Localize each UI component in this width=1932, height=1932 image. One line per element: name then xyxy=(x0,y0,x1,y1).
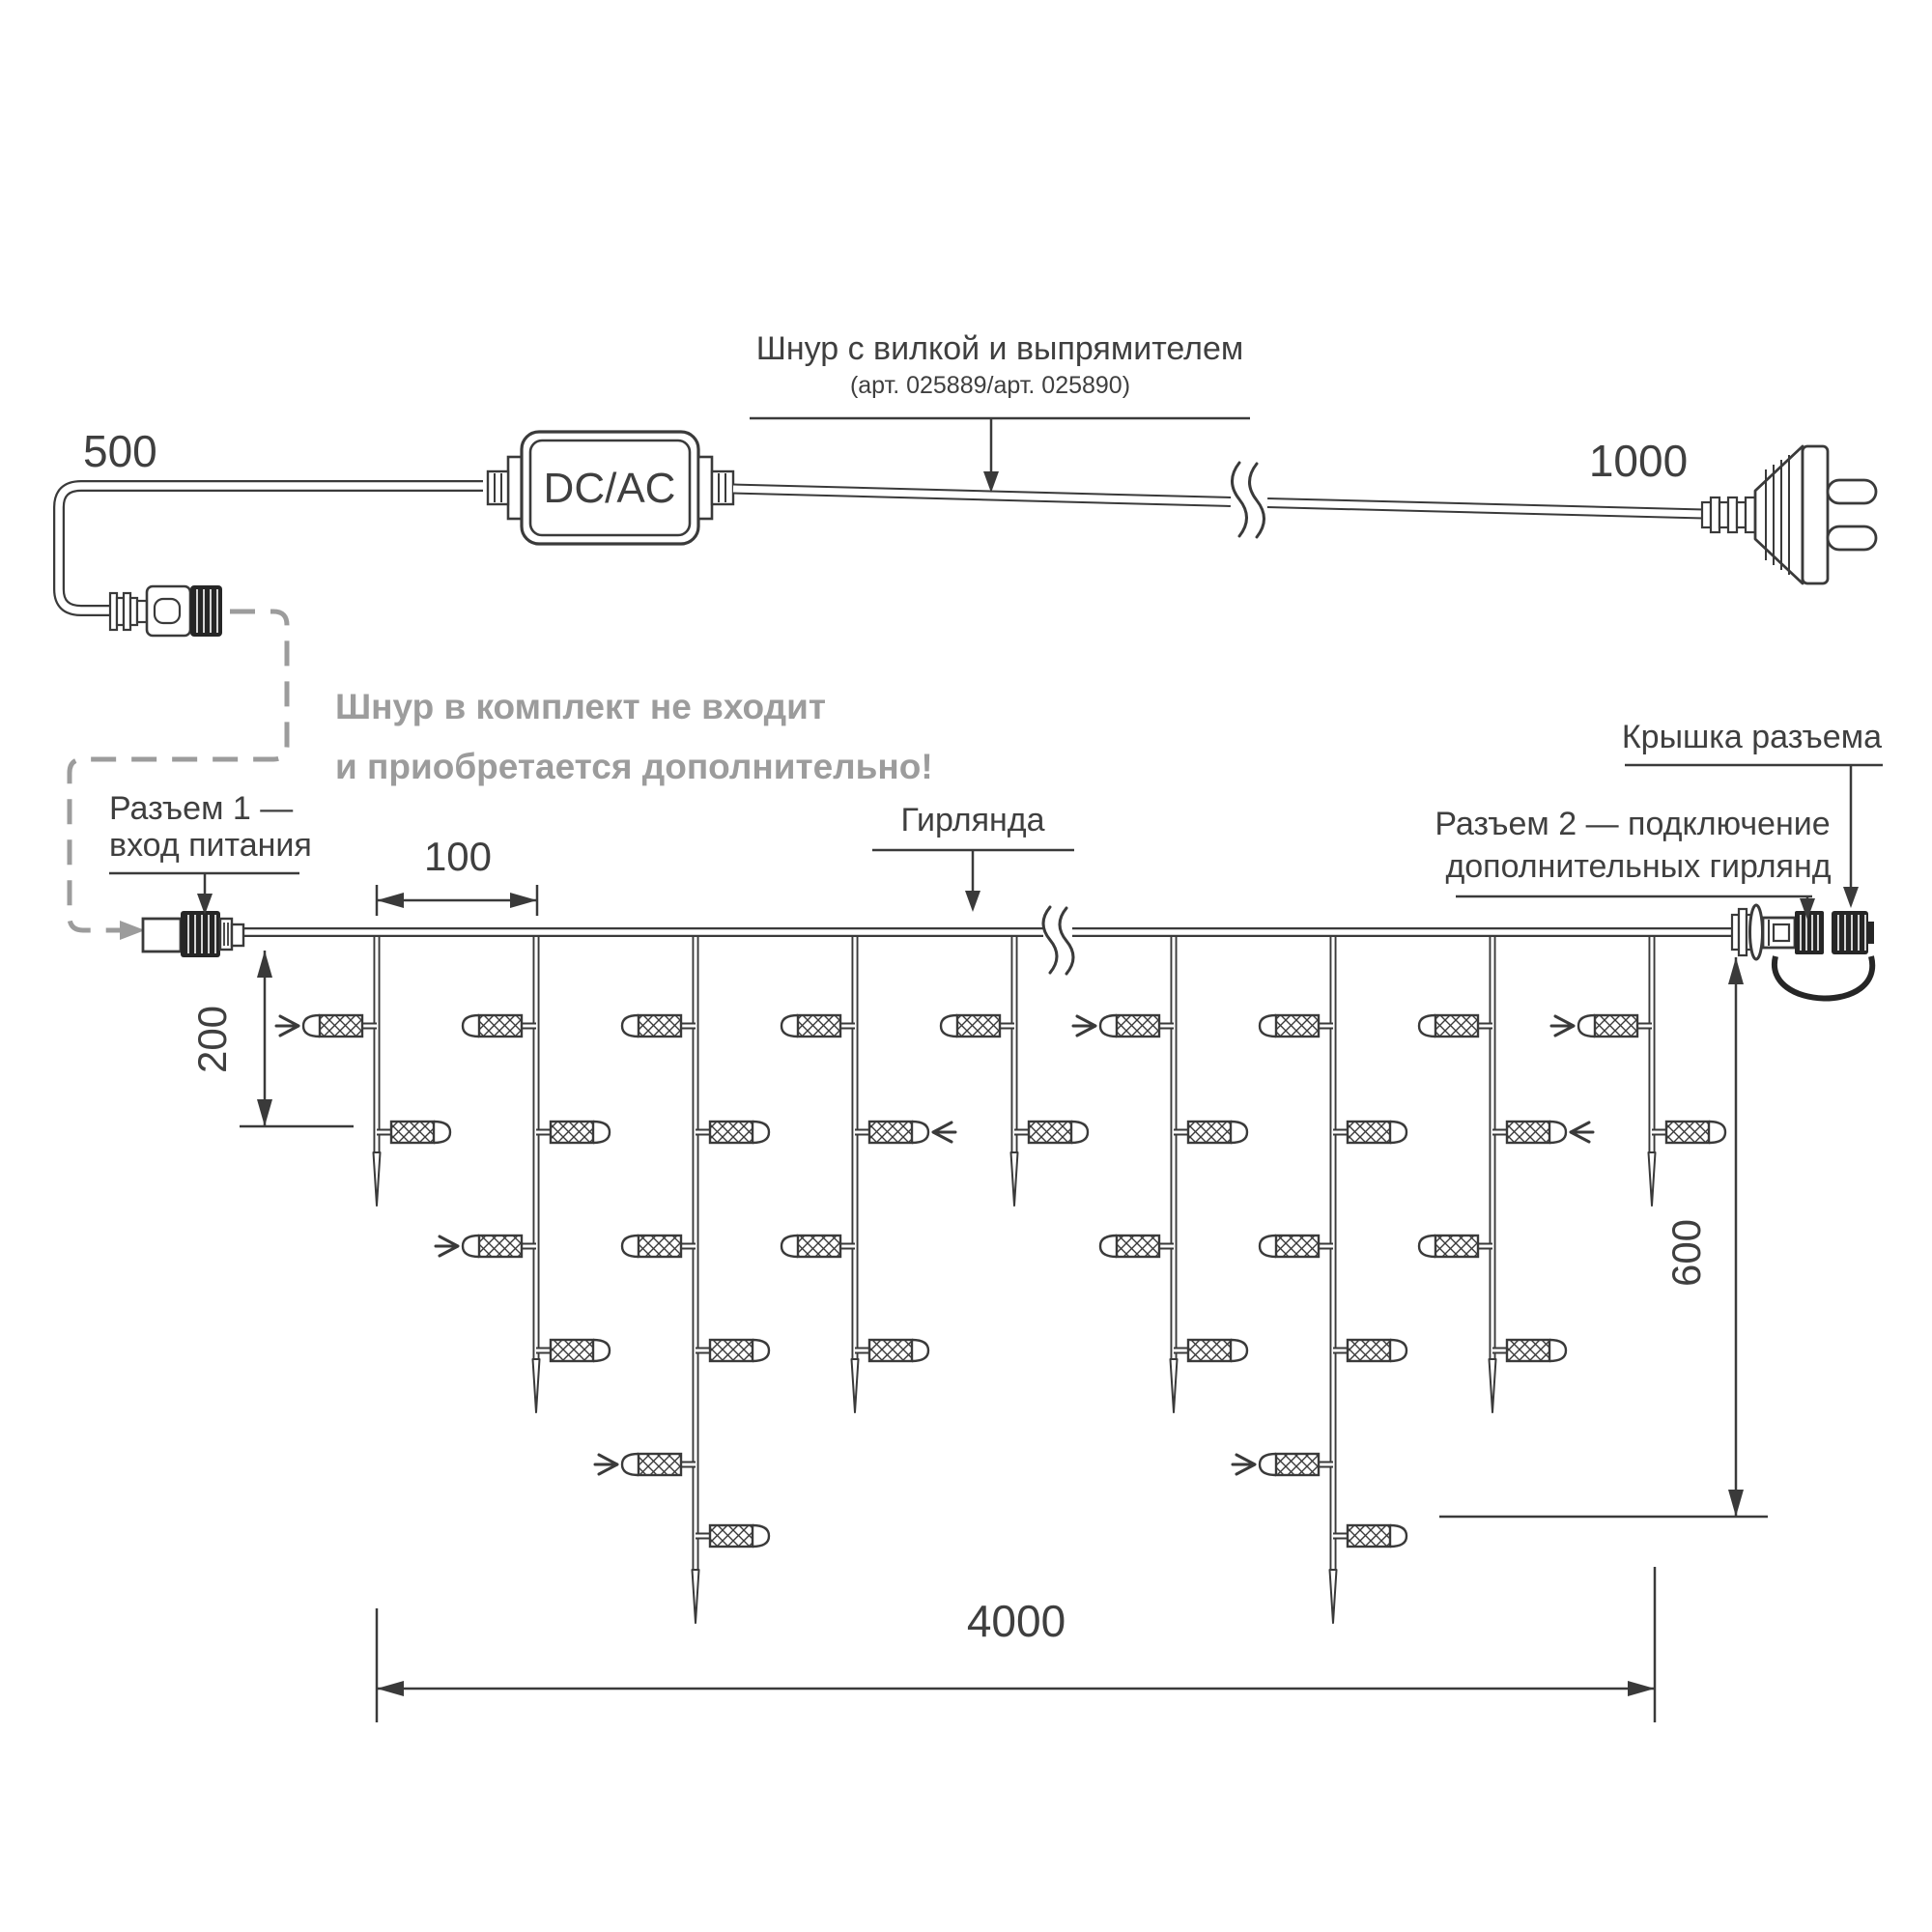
garland-bulbs xyxy=(276,1015,1725,1623)
led-bulb-icon xyxy=(622,1236,696,1257)
bulb-cap xyxy=(1390,1525,1406,1547)
dimension-200-value: 200 xyxy=(189,1006,235,1073)
bulb-cap xyxy=(622,1454,639,1475)
led-bulb-icon xyxy=(1073,1015,1174,1037)
led-bulb-icon xyxy=(622,1015,696,1037)
led-bulb-icon xyxy=(855,1340,928,1361)
dimension-600-value: 600 xyxy=(1663,1219,1709,1287)
led-bulb-icon xyxy=(941,1015,1014,1037)
bulb-cap xyxy=(1260,1454,1276,1475)
bulb-cap xyxy=(753,1340,769,1361)
arrow-down-icon xyxy=(1843,887,1859,908)
power-cord xyxy=(59,486,483,611)
led-bulb-icon xyxy=(1260,1236,1333,1257)
dimension-100-value: 100 xyxy=(424,834,492,879)
cord-break-icon xyxy=(1233,463,1264,537)
led-bulb-icon xyxy=(696,1122,769,1143)
dimension-100: 100 xyxy=(377,834,537,916)
light-rays-icon xyxy=(1233,1455,1255,1474)
bulb-cap xyxy=(1419,1015,1435,1037)
bulb-cap xyxy=(1231,1122,1247,1143)
drop-tip xyxy=(1330,1570,1337,1623)
bulb-cap xyxy=(1260,1236,1276,1257)
light-rays-icon xyxy=(436,1236,458,1256)
bulb-cap xyxy=(463,1015,479,1037)
dimension-4000: 4000 xyxy=(377,1567,1655,1722)
bulb-cap xyxy=(912,1122,928,1143)
led-bulb-icon xyxy=(1492,1340,1566,1361)
bulb-cap xyxy=(622,1015,639,1037)
drop-tip xyxy=(852,1359,859,1412)
cap-leash xyxy=(1775,956,1872,999)
power-connector-icon xyxy=(110,585,222,637)
led-bulb-icon xyxy=(536,1122,610,1143)
bulb-cap xyxy=(1100,1015,1117,1037)
drop-tip xyxy=(1171,1359,1178,1412)
drop-tip xyxy=(374,1152,381,1206)
bulb-cap xyxy=(1231,1340,1247,1361)
arrow-right-icon xyxy=(120,921,145,940)
bulb-cap xyxy=(1578,1015,1595,1037)
connector1-callout: Разъем 1 — вход питания xyxy=(109,790,312,915)
bulb-cap xyxy=(753,1122,769,1143)
drop-tip xyxy=(693,1570,699,1623)
dimension-600: 600 xyxy=(1439,957,1768,1517)
bulb-cap xyxy=(434,1122,450,1143)
bulb-cap xyxy=(463,1236,479,1257)
led-bulb-icon xyxy=(1492,1122,1593,1143)
led-bulb-icon xyxy=(696,1525,769,1547)
cord-subtitle: (арт. 025889/арт. 025890) xyxy=(850,372,1130,399)
connector1-line2: вход питания xyxy=(109,827,312,864)
led-bulb-icon xyxy=(1174,1122,1247,1143)
dashed-leader xyxy=(70,611,287,940)
led-bulb-icon xyxy=(1333,1340,1406,1361)
bulb-cap xyxy=(1390,1122,1406,1143)
garland-input-connector-icon xyxy=(143,911,243,957)
bulb-cap xyxy=(303,1015,320,1037)
note-line1: Шнур в комплект не входит xyxy=(335,687,826,726)
bulb-cap xyxy=(1071,1122,1088,1143)
led-bulb-icon xyxy=(1419,1236,1492,1257)
light-rays-icon xyxy=(276,1016,298,1036)
dimension-200: 200 xyxy=(189,951,354,1126)
plug-cord xyxy=(733,463,1704,537)
garland-callout: Гирлянда xyxy=(872,802,1074,912)
garland-wire xyxy=(243,907,1732,974)
led-bulb-icon xyxy=(463,1015,536,1037)
light-rays-icon xyxy=(933,1122,955,1142)
bulb-cap xyxy=(753,1525,769,1547)
bulb-cap xyxy=(941,1015,957,1037)
led-bulb-icon xyxy=(1333,1525,1406,1547)
led-bulb-icon xyxy=(276,1015,377,1037)
bulb-cap xyxy=(1709,1122,1725,1143)
bulb-cap xyxy=(593,1122,610,1143)
cord-right-length-label: 1000 xyxy=(1589,436,1688,486)
garland-output-connector-icon xyxy=(1732,905,1824,959)
connector2-line1: Разъем 2 — подключение xyxy=(1435,806,1830,842)
dcac-label: DC/AC xyxy=(544,465,676,512)
led-bulb-icon xyxy=(377,1122,450,1143)
power-plug-icon xyxy=(1702,446,1876,583)
led-bulb-icon xyxy=(436,1236,536,1257)
bulb-cap xyxy=(1100,1236,1117,1257)
connector1-line1: Разъем 1 — xyxy=(109,790,293,827)
drop-tip xyxy=(1490,1359,1496,1412)
bulb-cap xyxy=(912,1340,928,1361)
dcac-converter-box: DC/AC xyxy=(488,432,733,544)
drop-tip xyxy=(1649,1152,1656,1206)
led-bulb-icon xyxy=(1419,1015,1492,1037)
led-bulb-icon xyxy=(855,1122,955,1143)
bulb-cap xyxy=(1549,1340,1566,1361)
led-bulb-icon xyxy=(1652,1122,1725,1143)
drop-tip xyxy=(1011,1152,1018,1206)
led-bulb-icon xyxy=(595,1454,696,1475)
led-bulb-icon xyxy=(1333,1122,1406,1143)
led-bulb-icon xyxy=(1174,1340,1247,1361)
arrow-down-icon xyxy=(965,891,980,912)
connector2-line2: дополнительных гирлянд xyxy=(1445,848,1831,885)
bulb-cap xyxy=(1260,1015,1276,1037)
led-bulb-icon xyxy=(1014,1122,1088,1143)
dimension-4000-value: 4000 xyxy=(967,1596,1065,1646)
led-bulb-icon xyxy=(696,1340,769,1361)
led-bulb-icon xyxy=(1100,1236,1174,1257)
bulb-cap xyxy=(593,1340,610,1361)
garland-label: Гирлянда xyxy=(900,802,1044,838)
led-bulb-icon xyxy=(1233,1454,1333,1475)
bulb-cap xyxy=(781,1015,798,1037)
cord-title-callout: Шнур с вилкой и выпрямителем (арт. 02588… xyxy=(750,330,1250,493)
cord-left-length-label: 500 xyxy=(83,426,157,476)
light-rays-icon xyxy=(1551,1016,1574,1036)
bulb-cap xyxy=(622,1236,639,1257)
arrow-down-icon xyxy=(983,471,999,493)
cap-label: Крышка разъема xyxy=(1622,719,1882,755)
garland-dimension-diagram: DC/AC 500 1000 Шнур с вилкой и выпрямите… xyxy=(0,0,1932,1932)
light-rays-icon xyxy=(595,1455,617,1474)
drop-tip xyxy=(533,1359,540,1412)
light-rays-icon xyxy=(1571,1122,1593,1142)
connector2-callout: Разъем 2 — подключение дополнительных ги… xyxy=(1435,806,1831,920)
bulb-cap xyxy=(1419,1236,1435,1257)
led-bulb-icon xyxy=(781,1015,855,1037)
led-bulb-icon xyxy=(536,1340,610,1361)
cord-title: Шнур с вилкой и выпрямителем xyxy=(756,330,1244,367)
light-rays-icon xyxy=(1073,1016,1095,1036)
bulb-cap xyxy=(1549,1122,1566,1143)
note-line2: и приобретается дополнительно! xyxy=(335,747,933,786)
led-bulb-icon xyxy=(781,1236,855,1257)
led-bulb-icon xyxy=(1260,1015,1333,1037)
wire-break-icon xyxy=(1043,907,1073,974)
bulb-cap xyxy=(1390,1340,1406,1361)
led-bulb-icon xyxy=(1551,1015,1652,1037)
bulb-cap xyxy=(781,1236,798,1257)
